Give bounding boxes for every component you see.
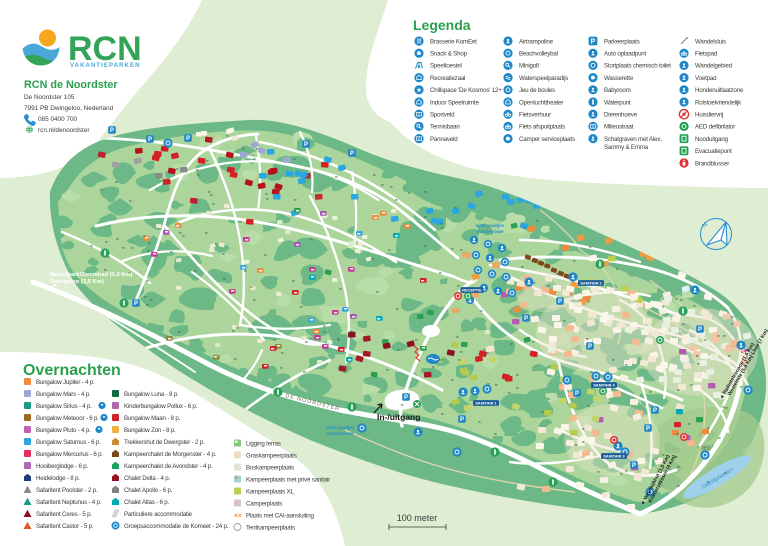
svg-text:P: P	[148, 137, 152, 143]
svg-text:Fiets afspuitplaats: Fiets afspuitplaats	[519, 124, 565, 131]
svg-text:Bungalow Mars - 4 p.: Bungalow Mars - 4 p.	[36, 391, 91, 398]
svg-text:Legenda: Legenda	[413, 17, 471, 33]
svg-text:Minigolf: Minigolf	[519, 63, 539, 70]
svg-text:P: P	[632, 463, 636, 469]
svg-text:Airtrampoline: Airtrampoline	[519, 38, 554, 45]
svg-text:Openluchttheater: Openluchttheater	[519, 99, 563, 106]
svg-text:Camper serviceplaats: Camper serviceplaats	[519, 136, 575, 143]
svg-text:Stortplaats chemisch toilet: Stortplaats chemisch toilet	[604, 63, 671, 70]
svg-text:Chalet Delta - 4 p.: Chalet Delta - 4 p.	[124, 475, 171, 482]
svg-text:Hondenuitlaatzone: Hondenuitlaatzone	[695, 87, 744, 94]
svg-text:Kampeerchalet de Avondster - 4: Kampeerchalet de Avondster - 4 p.	[124, 463, 213, 470]
svg-text:P: P	[575, 391, 579, 397]
svg-text:Rolstoelvriendelijk: Rolstoelvriendelijk	[695, 99, 742, 106]
svg-text:SANITAIR 4: SANITAIR 4	[593, 383, 615, 388]
svg-text:Tentkampeerplaats: Tentkampeerplaats	[246, 524, 295, 531]
svg-text:Babyroom: Babyroom	[604, 87, 631, 94]
svg-text:Parkeerplaats: Parkeerplaats	[604, 38, 640, 45]
svg-text:SANITAIR 3: SANITAIR 3	[603, 454, 625, 459]
svg-text:Bungalow Jupiter - 4 p.: Bungalow Jupiter - 4 p.	[36, 379, 95, 386]
svg-text:Bungalow Mercurius - 6 p.: Bungalow Mercurius - 6 p.	[36, 451, 103, 458]
svg-text:AED defibrilator: AED defibrilator	[695, 124, 735, 131]
svg-text:Bungalow Maan - 8 p.: Bungalow Maan - 8 p.	[124, 415, 181, 422]
svg-text:Fietspad: Fietspad	[695, 51, 718, 58]
svg-text:Voetpad: Voetpad	[695, 75, 717, 82]
svg-text:witte paaltjes: witte paaltjes	[475, 223, 505, 228]
svg-text:Milieustraat: Milieustraat	[604, 124, 634, 131]
svg-text:Bungalow Zon - 8 p.: Bungalow Zon - 8 p.	[124, 427, 176, 434]
svg-text:wandelroute: wandelroute	[475, 229, 504, 234]
svg-text:P: P	[588, 344, 592, 350]
svg-text:Brandblusser: Brandblusser	[695, 160, 729, 167]
svg-text:Plaats met CAI-aansluiting: Plaats met CAI-aansluiting	[246, 512, 314, 519]
svg-text:Overnachten: Overnachten	[23, 362, 121, 379]
svg-text:Beleefpark/Zwembad (0,9 Km): Beleefpark/Zwembad (0,9 Km)	[50, 272, 133, 278]
svg-text:Snack & Shop: Snack & Shop	[430, 51, 468, 58]
svg-text:Boskampeerplaats: Boskampeerplaats	[246, 464, 294, 471]
svg-text:Kinderbungalow Pollux - 6 p.: Kinderbungalow Pollux - 6 p.	[124, 403, 198, 410]
svg-text:Fietsverhuur: Fietsverhuur	[519, 112, 551, 119]
svg-text:P: P	[304, 142, 308, 148]
svg-text:Waterspeelparadijs: Waterspeelparadijs	[519, 75, 568, 82]
svg-text:7991 PB Dwingeloo, Nederland: 7991 PB Dwingeloo, Nederland	[24, 105, 114, 112]
svg-text:Kampeerplaats met privé sanita: Kampeerplaats met privé sanitair	[246, 476, 330, 483]
svg-text:Heidelodge - 8 p.: Heidelodge - 8 p.	[36, 475, 80, 482]
svg-text:Hooiberglodge - 6 p.: Hooiberglodge - 6 p.	[36, 463, 89, 470]
svg-text:Schatgraven met Alex,: Schatgraven met Alex,	[604, 136, 662, 143]
svg-text:Recreatiezaal: Recreatiezaal	[430, 75, 465, 82]
svg-text:Particuliere accommodatie: Particuliere accommodatie	[124, 511, 193, 518]
svg-text:P: P	[110, 128, 114, 134]
svg-text:P: P	[350, 151, 354, 157]
svg-text:Bungalow Sirius - 4 p.: Bungalow Sirius - 4 p.	[36, 403, 92, 410]
svg-text:P: P	[524, 316, 528, 322]
svg-text:De Noordster 105: De Noordster 105	[24, 94, 75, 101]
svg-text:Beachvolleybal: Beachvolleybal	[519, 51, 558, 58]
svg-text:Bungalow Meteoor - 6 p.: Bungalow Meteoor - 6 p.	[36, 415, 99, 422]
svg-text:RECEPTIE: RECEPTIE	[462, 288, 482, 293]
svg-text:Safaritent Neptunus - 4 p.: Safaritent Neptunus - 4 p.	[36, 499, 102, 506]
svg-text:Groepsaccommodatie de Komeet -: Groepsaccommodatie de Komeet - 24 p.	[124, 523, 229, 530]
svg-text:085 0400 700: 085 0400 700	[38, 116, 78, 123]
svg-text:P: P	[186, 136, 190, 142]
svg-text:Bungalow Pluto - 4 p.: Bungalow Pluto - 4 p.	[36, 427, 91, 434]
svg-text:Graskampeerplaats: Graskampeerplaats	[246, 452, 297, 459]
svg-text:Safaritent Ceres - 5 p.: Safaritent Ceres - 5 p.	[36, 511, 92, 518]
svg-text:SANITAIR 1: SANITAIR 1	[475, 401, 497, 406]
svg-text:P: P	[646, 426, 650, 432]
svg-text:Speeltoestel: Speeltoestel	[430, 63, 462, 70]
svg-text:Chalet Apollo - 6 p.: Chalet Apollo - 6 p.	[124, 487, 173, 494]
svg-text:Brasserie KomEet: Brasserie KomEet	[430, 38, 477, 45]
svg-text:Jeu de boules: Jeu de boules	[519, 87, 555, 94]
svg-text:Bungalow Saturnus - 6 p.: Bungalow Saturnus - 6 p.	[36, 439, 101, 446]
svg-text:Kampeerplaats XL: Kampeerplaats XL	[246, 488, 294, 495]
svg-text:SANITAIR 2: SANITAIR 2	[580, 281, 602, 286]
svg-text:Tennisbaan: Tennisbaan	[430, 124, 460, 131]
svg-text:P: P	[698, 327, 702, 333]
svg-text:P: P	[653, 408, 657, 414]
svg-text:Camperplaats: Camperplaats	[246, 500, 282, 507]
svg-text:witte paaltjes: witte paaltjes	[325, 425, 355, 430]
svg-text:Safaritent Castor - 5 p.: Safaritent Castor - 5 p.	[36, 523, 94, 530]
svg-text:P: P	[134, 301, 138, 307]
svg-text:Kampeerchalet de Morgenster -: Kampeerchalet de Morgenster - 4 p.	[124, 451, 217, 458]
svg-text:P: P	[558, 299, 562, 305]
svg-text:Sportveld: Sportveld	[430, 112, 455, 119]
svg-text:P: P	[404, 395, 408, 401]
svg-text:rcn.nl/denoordster: rcn.nl/denoordster	[38, 127, 90, 134]
svg-text:Safaritent Poolster - 2 p.: Safaritent Poolster - 2 p.	[36, 487, 98, 494]
svg-text:××: ××	[234, 513, 242, 520]
svg-text:P: P	[591, 39, 596, 46]
svg-text:Ligging terras: Ligging terras	[246, 440, 281, 447]
svg-text:Sammy & Emma: Sammy & Emma	[604, 144, 649, 151]
svg-text:Evacuatiepunt: Evacuatiepunt	[695, 148, 732, 155]
svg-text:P: P	[460, 417, 464, 423]
svg-text:RCN de Noordster: RCN de Noordster	[24, 79, 118, 91]
svg-text:Trekkershut de Dwergster - 2 p: Trekkershut de Dwergster - 2 p.	[124, 439, 205, 446]
svg-text:Bungalow Luna - 8 p.: Bungalow Luna - 8 p.	[124, 391, 179, 398]
svg-text:Chalet Atlas - 6 p.: Chalet Atlas - 6 p.	[124, 499, 170, 506]
svg-text:Dierenhoeve: Dierenhoeve	[604, 112, 638, 119]
svg-text:Dwingeloo (2,5 Km): Dwingeloo (2,5 Km)	[50, 279, 104, 285]
svg-text:100 meter: 100 meter	[397, 513, 438, 523]
svg-text:Auto oplaadpunt: Auto oplaadpunt	[604, 51, 647, 58]
svg-text:Pannaveld: Pannaveld	[430, 136, 458, 143]
svg-text:Nooduitgang: Nooduitgang	[695, 136, 729, 143]
svg-text:Wandelsluis: Wandelsluis	[695, 38, 726, 45]
svg-text:Huisdiervrij: Huisdiervrij	[695, 112, 723, 119]
svg-text:Wasserette: Wasserette	[604, 75, 634, 82]
svg-text:In-/uitgang: In-/uitgang	[377, 412, 420, 422]
svg-text:Indoor Speelruimte: Indoor Speelruimte	[430, 99, 479, 106]
svg-text:Waterpunt: Waterpunt	[604, 99, 631, 106]
svg-text:Wandelgebied: Wandelgebied	[695, 63, 733, 70]
svg-text:wandelroute: wandelroute	[325, 431, 354, 436]
svg-text:Chillspace 'De Kosmos' 12+: Chillspace 'De Kosmos' 12+	[430, 87, 502, 94]
svg-text:VAKANTIEPARKEN: VAKANTIEPARKEN	[70, 63, 141, 69]
